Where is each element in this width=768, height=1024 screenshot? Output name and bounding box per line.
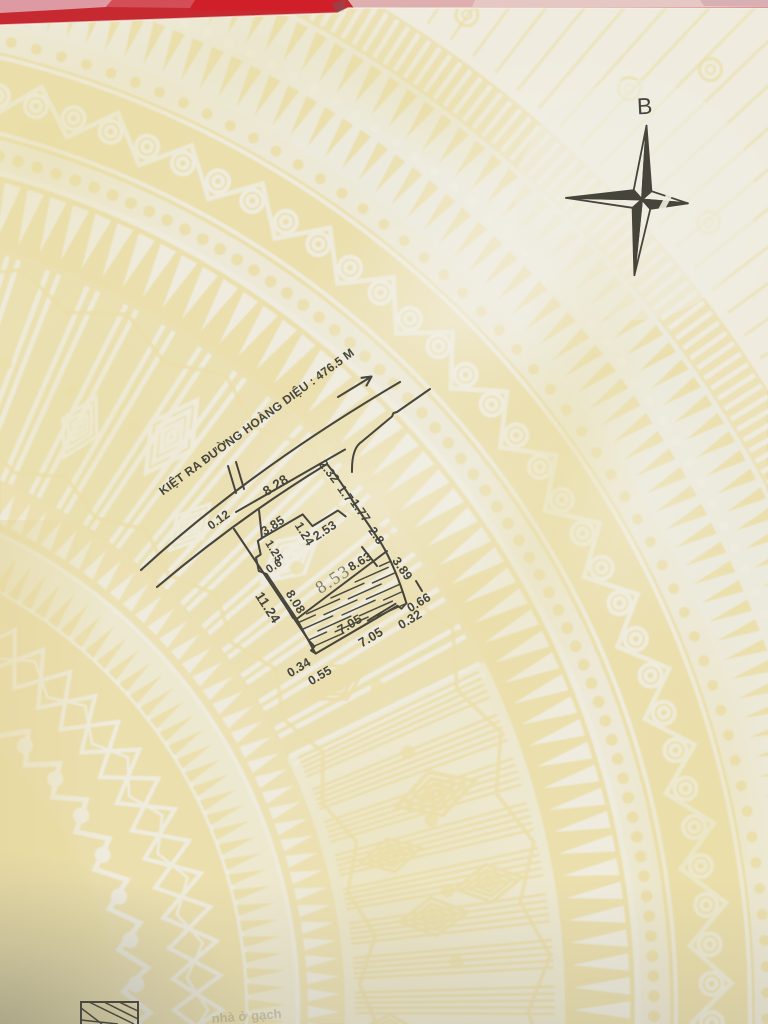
svg-text:B: B (636, 93, 653, 120)
